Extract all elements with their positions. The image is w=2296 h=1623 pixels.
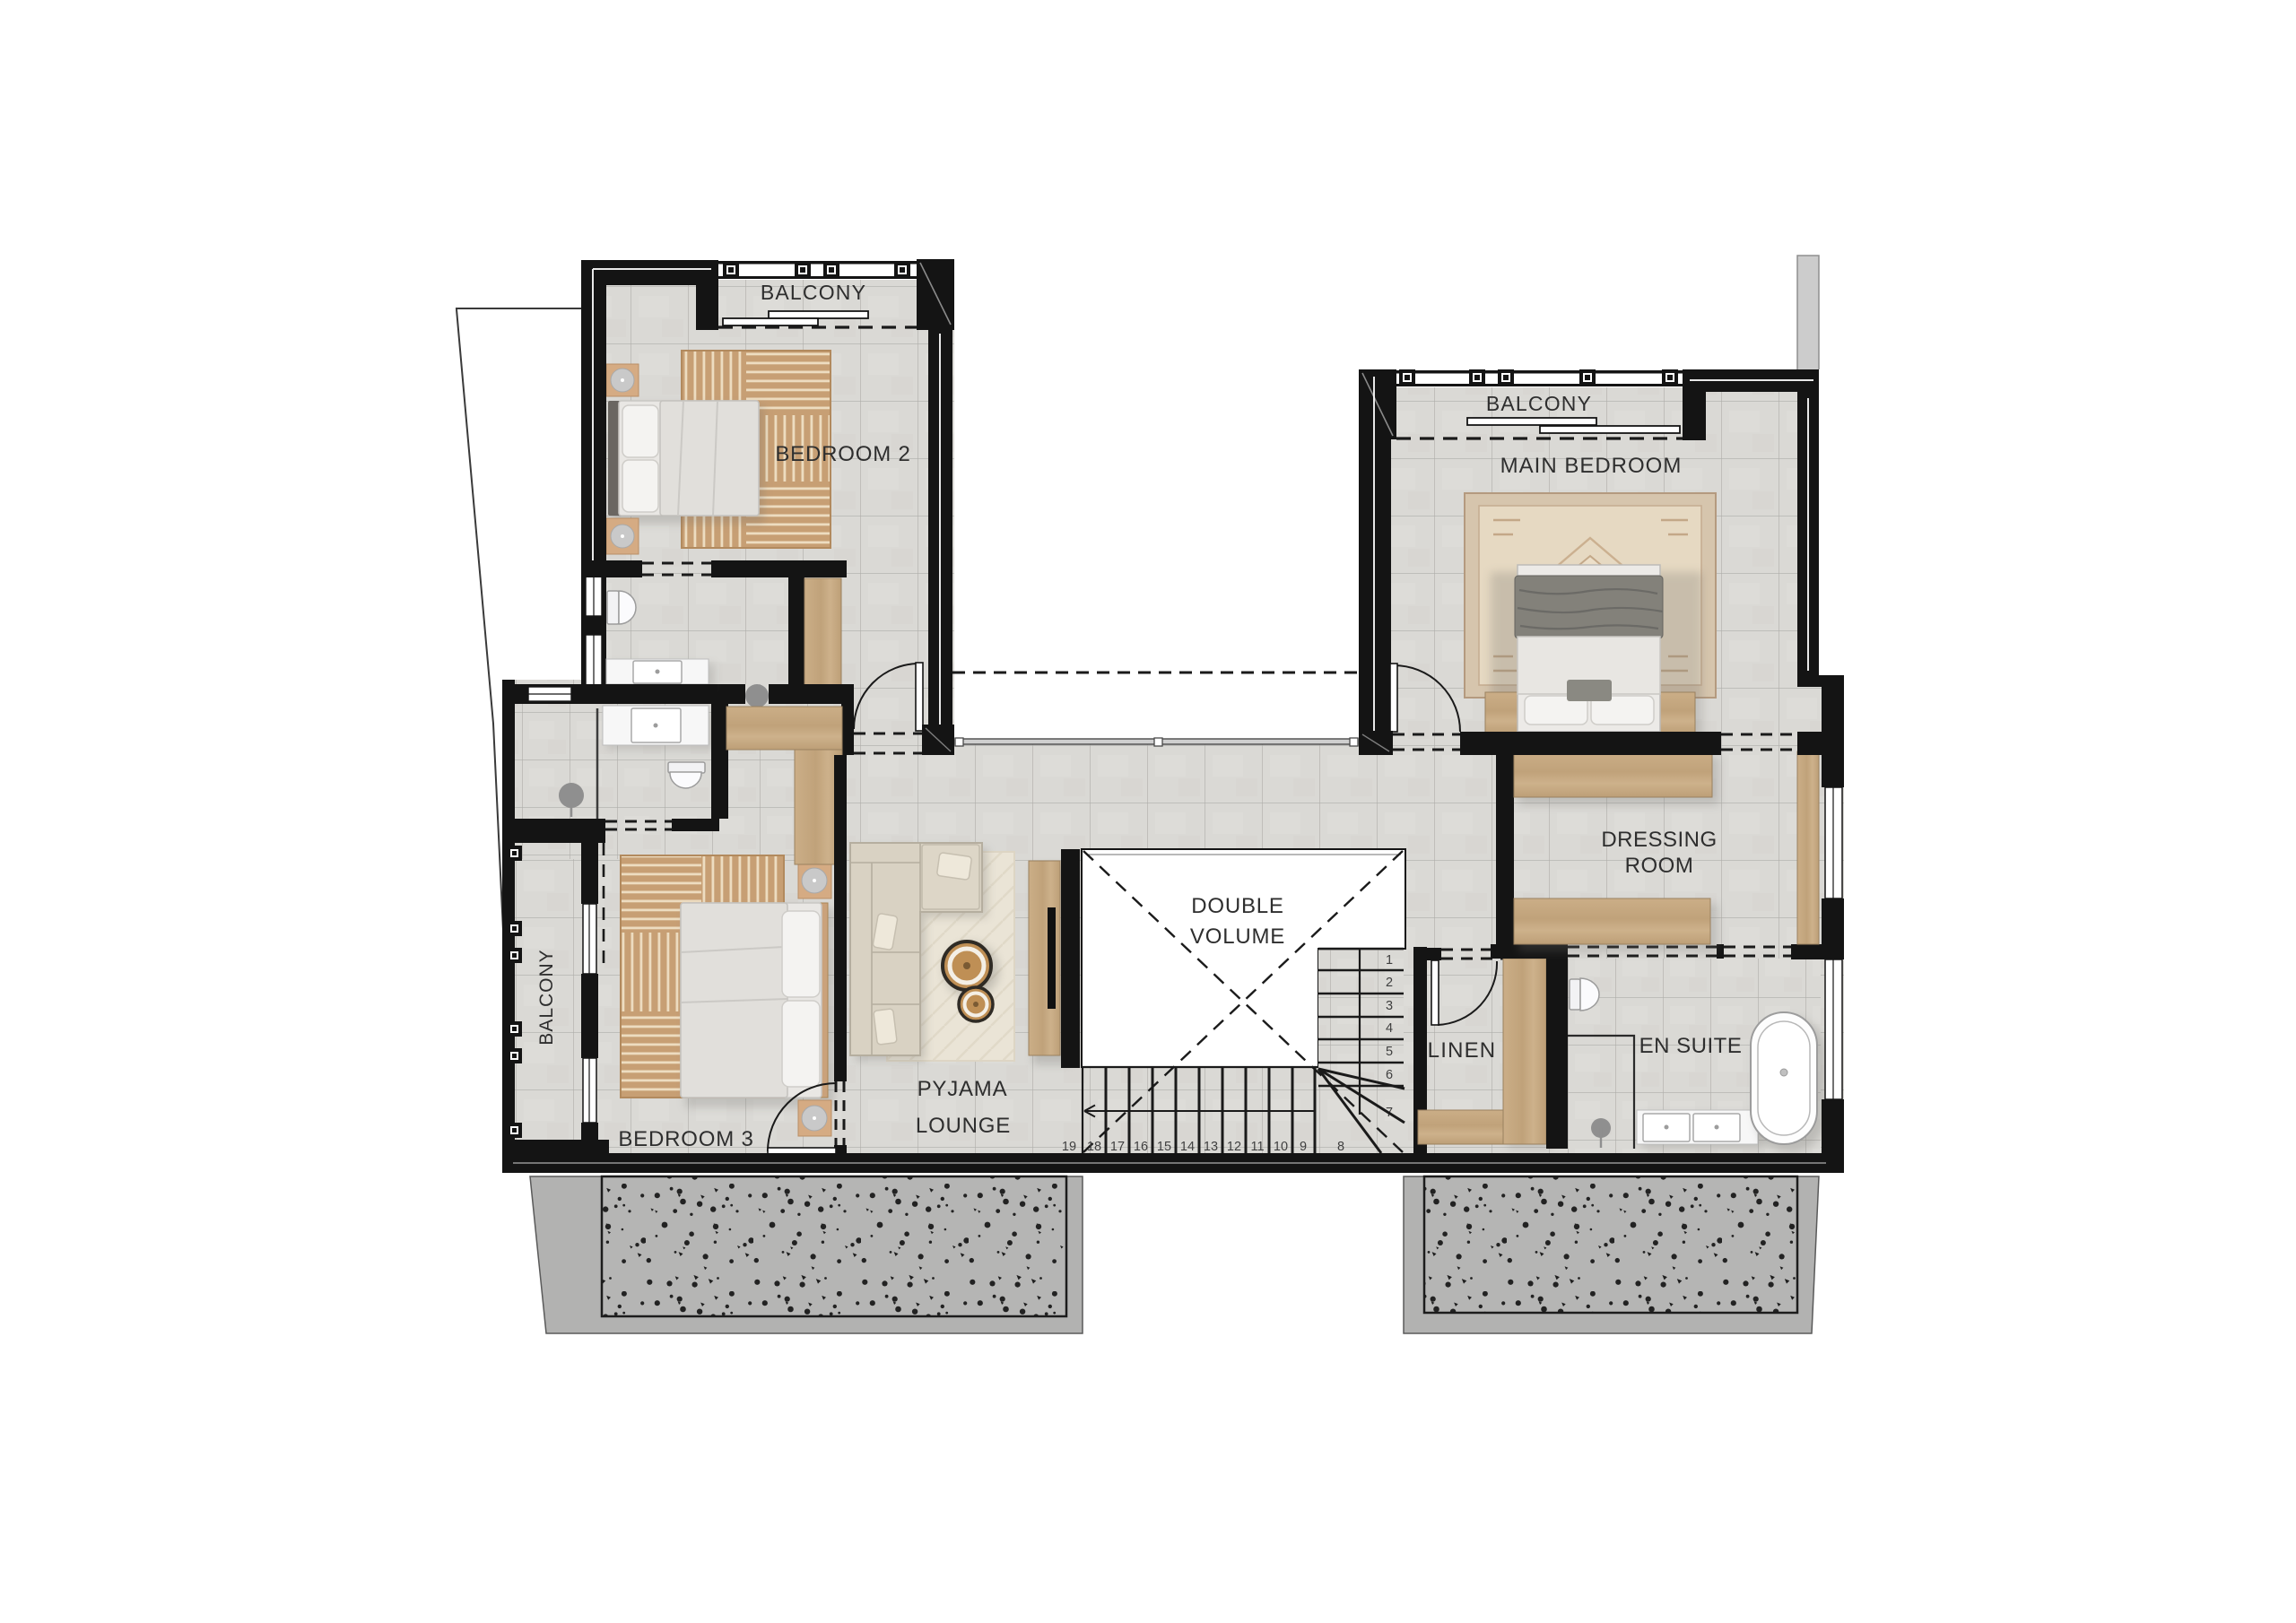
- svg-text:ROOM: ROOM: [1625, 854, 1694, 878]
- svg-text:15: 15: [1157, 1140, 1171, 1154]
- svg-text:3: 3: [1386, 999, 1393, 1013]
- svg-text:VOLUME: VOLUME: [1190, 924, 1285, 949]
- svg-text:5: 5: [1386, 1045, 1393, 1059]
- svg-text:2: 2: [1386, 976, 1393, 990]
- svg-text:9: 9: [1300, 1140, 1307, 1154]
- svg-text:18: 18: [1087, 1140, 1101, 1154]
- svg-text:DRESSING: DRESSING: [1601, 828, 1717, 852]
- svg-text:PYJAMA: PYJAMA: [918, 1077, 1008, 1101]
- svg-text:BALCONY: BALCONY: [536, 949, 557, 1045]
- svg-text:LOUNGE: LOUNGE: [916, 1114, 1011, 1138]
- svg-text:11: 11: [1250, 1140, 1264, 1154]
- svg-text:6: 6: [1386, 1068, 1393, 1082]
- svg-text:BALCONY: BALCONY: [1486, 392, 1592, 415]
- svg-text:13: 13: [1204, 1140, 1218, 1154]
- svg-text:MAIN BEDROOM: MAIN BEDROOM: [1500, 454, 1683, 478]
- svg-text:12: 12: [1227, 1140, 1241, 1154]
- svg-text:EN SUITE: EN SUITE: [1639, 1034, 1743, 1058]
- svg-text:DOUBLE: DOUBLE: [1191, 894, 1284, 918]
- svg-text:4: 4: [1386, 1021, 1393, 1036]
- svg-text:19: 19: [1062, 1140, 1076, 1154]
- svg-text:10: 10: [1274, 1140, 1288, 1154]
- svg-text:16: 16: [1134, 1140, 1148, 1154]
- svg-text:14: 14: [1180, 1140, 1195, 1154]
- svg-text:BEDROOM 3: BEDROOM 3: [618, 1127, 753, 1151]
- svg-text:BEDROOM 2: BEDROOM 2: [775, 442, 910, 466]
- svg-text:1: 1: [1386, 953, 1393, 968]
- svg-text:8: 8: [1337, 1140, 1344, 1154]
- svg-text:BALCONY: BALCONY: [761, 281, 866, 304]
- svg-text:17: 17: [1110, 1140, 1125, 1154]
- svg-text:LINEN: LINEN: [1428, 1038, 1497, 1063]
